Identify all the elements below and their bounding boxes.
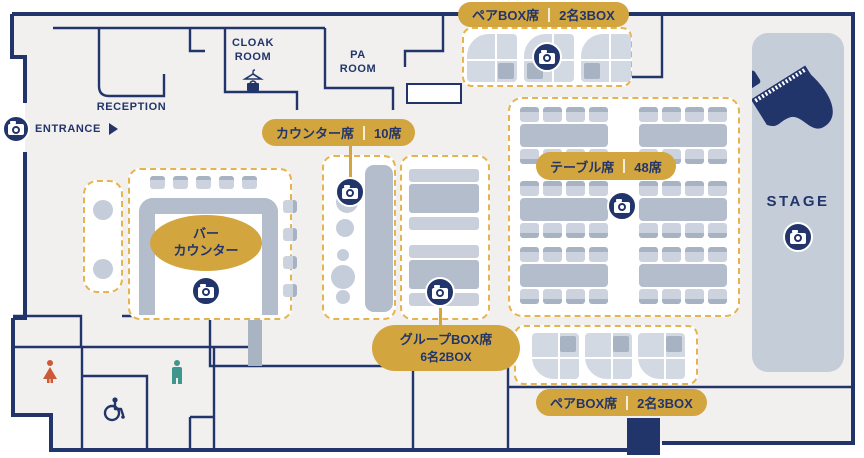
stage-camera-icon[interactable] (783, 222, 813, 252)
table-seat-camera-icon[interactable] (607, 191, 637, 221)
bench (409, 169, 479, 182)
women-toilet-icon (42, 360, 58, 383)
chair (283, 228, 297, 241)
entrance-arrow-icon (109, 123, 118, 135)
chair (150, 176, 165, 189)
pair-box-bottom-area (514, 325, 698, 385)
pair-box-seat (585, 333, 632, 379)
bar-chair-row (150, 176, 257, 189)
cloak-room-label: CLOAK ROOM (221, 36, 285, 97)
table (639, 198, 727, 221)
group-box-pill: グループBOX席 6名2BOX (372, 325, 520, 371)
hanger-and-bag-icon (241, 67, 265, 93)
pair-box-seat (467, 34, 517, 82)
bench (409, 245, 479, 258)
pair-box-bottom-pill: ペアBOX席2名3BOX (536, 389, 707, 416)
men-toilet-icon (169, 360, 185, 384)
pair-box-top-pill: ペアBOX席2名3BOX (458, 2, 629, 27)
bench (409, 217, 479, 230)
counter-pill-tail (349, 146, 352, 178)
chair (242, 176, 257, 189)
stool (337, 249, 349, 261)
stool (336, 219, 354, 237)
pair-box-seat (532, 333, 579, 379)
table (409, 184, 479, 213)
chair (173, 176, 188, 189)
table (520, 124, 608, 147)
table (520, 198, 608, 221)
chair (283, 256, 297, 269)
standing-table (93, 259, 113, 279)
table (639, 124, 727, 147)
table-group (520, 247, 608, 304)
chair (219, 176, 234, 189)
grand-piano-icon (752, 43, 844, 193)
pair-box-top-camera-icon[interactable] (532, 42, 562, 72)
pair-box-seat (581, 34, 631, 82)
table-group (639, 247, 727, 304)
stool (331, 265, 355, 289)
table-seat-pill: テーブル席48席 (536, 152, 676, 180)
venue-floor-map: RECEPTION CLOAK ROOM PA ROOM ENTRANCE (0, 0, 864, 458)
pa-room-label: PA ROOM (330, 48, 386, 77)
pair-box-seat (638, 333, 685, 379)
chair (283, 284, 297, 297)
stage-label: STAGE (752, 193, 844, 210)
table (520, 264, 608, 287)
counter-camera-icon[interactable] (335, 177, 365, 207)
stool (336, 290, 350, 304)
counter-seat-pill: カウンター席10席 (262, 119, 415, 146)
table-group (520, 181, 608, 238)
bar-counter-pill: バー カウンター (150, 215, 262, 271)
rear-door-block (627, 418, 660, 455)
entrance-label: ENTRANCE (35, 122, 118, 136)
group-box-camera-icon[interactable] (425, 277, 455, 307)
chair (283, 200, 297, 213)
stage-area: STAGE (752, 33, 844, 372)
counter (365, 165, 393, 312)
service-table (406, 83, 462, 104)
standing-table (93, 200, 113, 220)
entrance-camera-icon[interactable] (2, 115, 30, 143)
reception-label: RECEPTION (89, 100, 174, 114)
table-group (639, 181, 727, 238)
standing-table-area (83, 180, 123, 293)
table (639, 264, 727, 287)
bar-camera-icon[interactable] (191, 276, 221, 306)
accessible-toilet-icon (100, 396, 128, 424)
chair (196, 176, 211, 189)
bar-chair-column (283, 200, 297, 297)
